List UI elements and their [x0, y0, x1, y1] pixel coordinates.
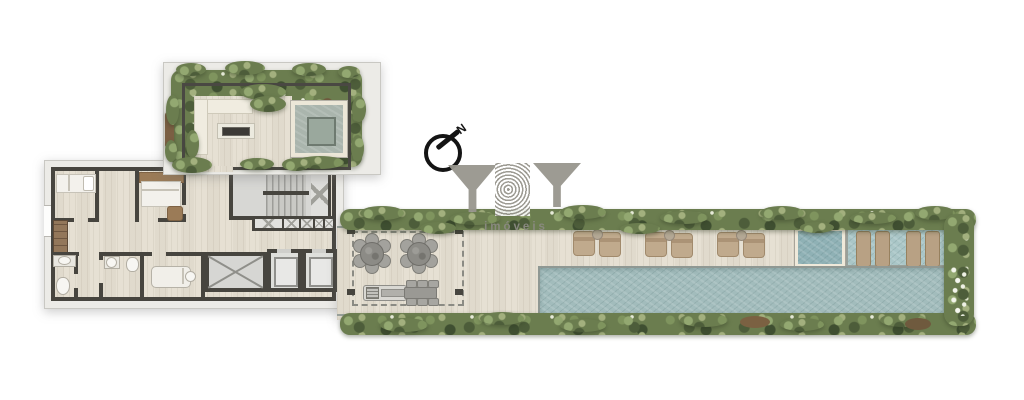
foliage-tuft — [225, 61, 265, 75]
foliage-tuft — [850, 212, 896, 224]
shaft — [311, 173, 328, 216]
foliage-tuft — [380, 318, 428, 332]
wall — [144, 252, 152, 256]
foliage-tuft — [292, 63, 326, 76]
elevator-car — [274, 257, 298, 287]
storage-cell — [284, 219, 299, 228]
foliage-tuft — [176, 63, 206, 76]
foliage-tuft — [172, 157, 212, 173]
in-pool-lounger — [856, 231, 871, 267]
water-feature-inner — [307, 117, 336, 146]
in-pool-lounger — [906, 231, 921, 267]
wall — [140, 252, 144, 301]
wall — [74, 288, 78, 301]
bed — [141, 181, 181, 207]
round-table-set — [399, 234, 437, 272]
elevator-door — [312, 249, 326, 253]
storage-row — [252, 216, 336, 231]
in-pool-lounger — [925, 231, 940, 267]
wall — [88, 218, 96, 222]
logo-letter-y — [533, 163, 581, 207]
storage-cell — [325, 219, 333, 228]
foliage-tuft — [166, 95, 179, 125]
wall — [166, 252, 205, 256]
pillow — [83, 176, 94, 191]
side-table — [592, 229, 603, 240]
foliage-tuft — [760, 206, 804, 220]
window-opening — [44, 205, 51, 237]
elevator-door — [277, 249, 291, 253]
wall — [99, 283, 103, 301]
side-table — [736, 230, 747, 241]
side-table — [664, 230, 675, 241]
massage-table-fold — [182, 268, 184, 284]
stair-railing — [263, 191, 309, 195]
storage-cell — [255, 219, 282, 228]
lounge-pair — [717, 230, 767, 256]
foliage-tuft — [338, 66, 360, 78]
round-table-set — [352, 234, 390, 272]
brand-logo: imóveis — [446, 158, 586, 238]
foliage-tuft — [780, 318, 824, 331]
storage-cell — [315, 219, 323, 228]
headrest — [185, 271, 196, 282]
mulch-patch — [905, 318, 931, 330]
lap-pool — [538, 266, 948, 317]
lounge-pair — [645, 230, 695, 256]
stair-treads — [266, 174, 306, 217]
foliage-tuft — [560, 319, 606, 332]
foliage-tuft — [240, 158, 274, 170]
chair — [417, 298, 428, 306]
logo-letter-b — [495, 163, 530, 216]
foliage-tuft — [282, 158, 310, 171]
wardrobe — [53, 220, 68, 254]
dining-table — [404, 287, 437, 299]
water-feature — [291, 101, 347, 157]
bed-blanket-fold — [141, 189, 179, 191]
storage-cell — [301, 219, 312, 228]
toilet — [126, 257, 139, 272]
bbq-grill — [366, 287, 379, 299]
foliage-tuft — [165, 140, 177, 162]
foliage-tuft — [352, 96, 366, 122]
elevator-car — [309, 257, 333, 287]
round-table — [407, 242, 431, 266]
foliage-tuft — [480, 312, 524, 325]
chair — [428, 298, 439, 306]
white-flower-cluster — [946, 264, 972, 316]
foliage-tuft — [250, 96, 286, 112]
round-table — [360, 242, 384, 266]
pillar — [347, 289, 355, 295]
wall — [51, 297, 336, 301]
pillar — [455, 289, 463, 295]
brand-tagline: imóveis — [466, 221, 566, 235]
foliage-tuft — [660, 211, 708, 224]
foliage-tuft — [620, 223, 660, 234]
fire-pit — [222, 127, 250, 136]
ottoman — [167, 206, 183, 221]
spa — [795, 228, 845, 267]
foliage-tuft — [680, 313, 728, 327]
bed-blanket-fold — [68, 174, 70, 191]
elevator — [302, 249, 337, 292]
foliage-tuft — [351, 135, 364, 161]
toilet — [56, 277, 70, 295]
planting-strip-bottom — [340, 313, 976, 335]
sink — [58, 256, 71, 265]
foliage-tuft — [360, 206, 404, 220]
in-pool-lounger — [875, 231, 890, 267]
rooftop-floor-plan: N imóveis — [0, 0, 1024, 400]
logo-letter-y — [448, 165, 497, 212]
bbq-bench — [381, 289, 405, 297]
mulch-patch — [740, 316, 770, 328]
service-shaft — [205, 252, 267, 292]
foliage-tuft — [186, 130, 199, 158]
chair — [406, 298, 417, 306]
elevator — [267, 249, 302, 292]
foliage-tuft — [800, 222, 834, 233]
parapet-wall — [348, 83, 351, 170]
sink — [106, 257, 117, 268]
